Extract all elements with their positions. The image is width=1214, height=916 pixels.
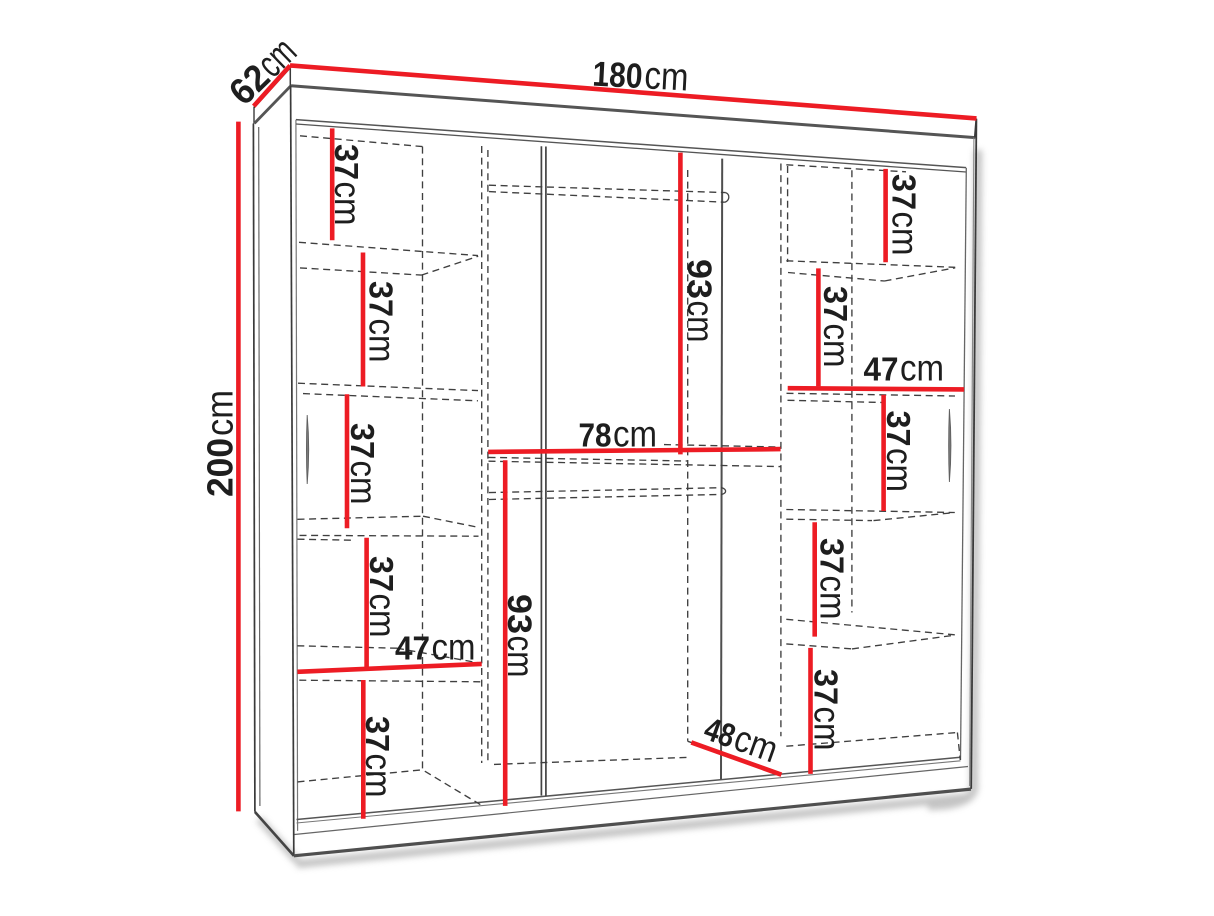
svg-text:37cm: 37cm	[327, 144, 368, 226]
svg-text:200cm: 200cm	[200, 390, 242, 497]
svg-text:37cm: 37cm	[362, 556, 403, 638]
svg-text:93cm: 93cm	[500, 594, 541, 678]
svg-text:37cm: 37cm	[879, 411, 920, 493]
svg-text:37cm: 37cm	[807, 669, 848, 751]
svg-text:78cm: 78cm	[579, 414, 658, 455]
svg-text:93cm: 93cm	[680, 259, 721, 343]
svg-text:47cm: 47cm	[395, 627, 476, 668]
svg-text:180cm: 180cm	[592, 52, 690, 100]
svg-text:37cm: 37cm	[362, 281, 403, 363]
svg-text:37cm: 37cm	[813, 538, 854, 620]
svg-text:37cm: 37cm	[885, 174, 926, 256]
svg-text:37cm: 37cm	[358, 716, 399, 798]
svg-text:47cm: 47cm	[864, 348, 945, 389]
svg-text:37cm: 37cm	[343, 423, 384, 505]
svg-text:37cm: 37cm	[816, 286, 857, 368]
